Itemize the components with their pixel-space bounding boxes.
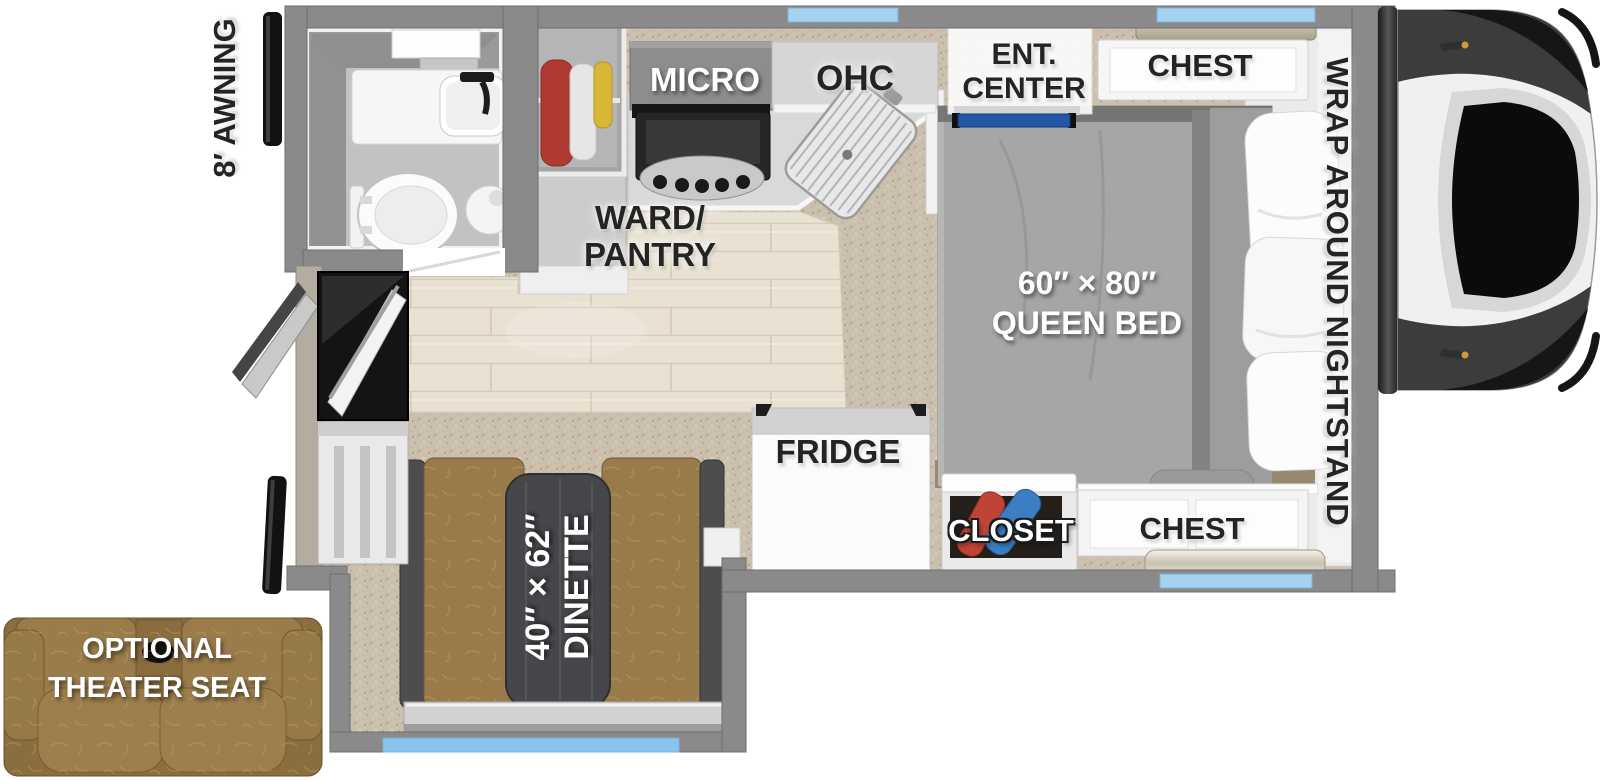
wardrobe	[524, 20, 624, 174]
window-bottom-bedroom	[1160, 574, 1312, 588]
dinette-bench-right	[602, 458, 702, 708]
entertainment-center	[948, 26, 1092, 128]
dinette-step	[404, 702, 724, 732]
pillows	[1242, 110, 1346, 472]
hanging-clothes-white	[570, 64, 596, 160]
awning-bar-bottom	[262, 476, 287, 595]
dinette	[400, 458, 740, 732]
floorplan-drawing	[0, 0, 1600, 781]
stove	[636, 112, 770, 200]
theater-seat	[4, 618, 322, 776]
bathroom-sink	[352, 70, 506, 144]
truck-cab	[1378, 6, 1597, 394]
fridge	[752, 404, 930, 570]
awning-bar-top	[263, 12, 282, 146]
window-top-kitchen	[788, 8, 898, 22]
chest-top-cabinet	[1098, 40, 1308, 100]
dinette-table	[506, 474, 610, 708]
closet-cabinet	[942, 474, 1077, 572]
medicine-cabinet	[392, 30, 480, 58]
hanging-clothes-yellow	[594, 62, 612, 128]
entry-door	[232, 272, 408, 420]
bathroom	[305, 28, 514, 257]
microwave	[630, 42, 772, 118]
faucet-icon	[460, 72, 494, 82]
window-dinette	[383, 738, 679, 752]
floorplan-canvas: 8′ AWNING MICRO OHC ENT. CENTER CHEST WR…	[0, 0, 1600, 781]
window-top-bedroom	[1157, 8, 1315, 22]
entry-steps	[318, 422, 408, 564]
hanging-clothes-red	[541, 60, 573, 166]
chest-bottom-cabinet	[1078, 484, 1318, 556]
queen-bed	[938, 106, 1272, 504]
